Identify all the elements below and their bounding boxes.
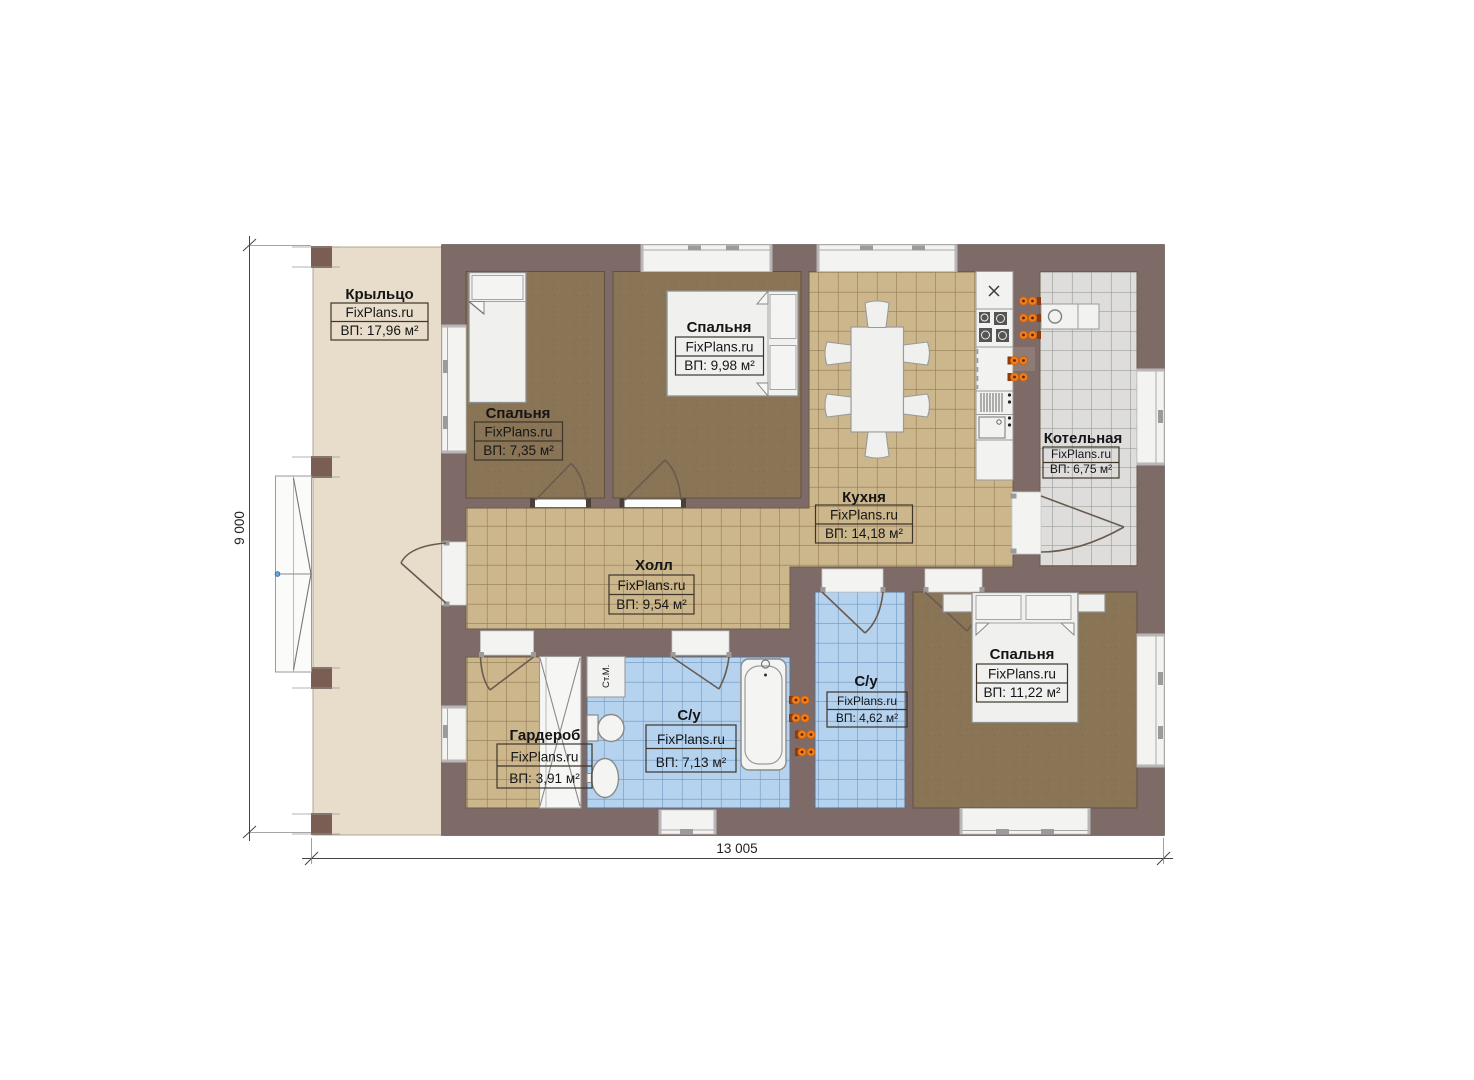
svg-text:ВП: 4,62 м²: ВП: 4,62 м²	[836, 711, 898, 725]
svg-text:9 000: 9 000	[232, 511, 247, 545]
svg-text:ВП: 17,96 м²: ВП: 17,96 м²	[340, 323, 419, 338]
svg-text:FixPlans.ru: FixPlans.ru	[346, 305, 414, 320]
svg-text:Кухня: Кухня	[842, 489, 886, 506]
svg-text:FixPlans.ru: FixPlans.ru	[988, 667, 1056, 682]
svg-text:13 005: 13 005	[716, 841, 757, 856]
svg-text:Ст.М.: Ст.М.	[601, 665, 612, 688]
svg-text:ВП: 9,54 м²: ВП: 9,54 м²	[616, 597, 687, 612]
svg-text:ВП: 7,13 м²: ВП: 7,13 м²	[656, 755, 727, 770]
svg-text:С/у: С/у	[854, 673, 878, 690]
svg-text:Котельная: Котельная	[1044, 430, 1123, 447]
svg-text:ВП: 11,22 м²: ВП: 11,22 м²	[983, 685, 1061, 700]
svg-text:FixPlans.ru: FixPlans.ru	[485, 425, 553, 440]
svg-text:ВП: 9,98 м²: ВП: 9,98 м²	[684, 358, 755, 373]
svg-text:Спальня: Спальня	[486, 405, 551, 422]
svg-text:FixPlans.ru: FixPlans.ru	[837, 694, 897, 708]
svg-text:FixPlans.ru: FixPlans.ru	[830, 508, 898, 523]
svg-text:Холл: Холл	[635, 557, 673, 574]
svg-text:ВП: 3,91 м²: ВП: 3,91 м²	[509, 771, 580, 786]
svg-text:ВП: 6,75 м²: ВП: 6,75 м²	[1050, 462, 1112, 476]
svg-text:С/у: С/у	[677, 707, 701, 724]
svg-text:FixPlans.ru: FixPlans.ru	[1051, 447, 1111, 461]
svg-text:FixPlans.ru: FixPlans.ru	[618, 578, 686, 593]
svg-text:ВП: 7,35 м²: ВП: 7,35 м²	[483, 443, 554, 458]
svg-text:FixPlans.ru: FixPlans.ru	[686, 340, 754, 355]
svg-text:FixPlans.ru: FixPlans.ru	[511, 750, 579, 765]
svg-text:Гардероб: Гардероб	[510, 727, 581, 744]
svg-text:Спальня: Спальня	[687, 319, 752, 336]
svg-text:ВП: 14,18 м²: ВП: 14,18 м²	[825, 526, 904, 541]
svg-text:FixPlans.ru: FixPlans.ru	[657, 732, 725, 747]
svg-text:Спальня: Спальня	[990, 646, 1055, 663]
svg-text:Крыльцо: Крыльцо	[345, 286, 413, 303]
